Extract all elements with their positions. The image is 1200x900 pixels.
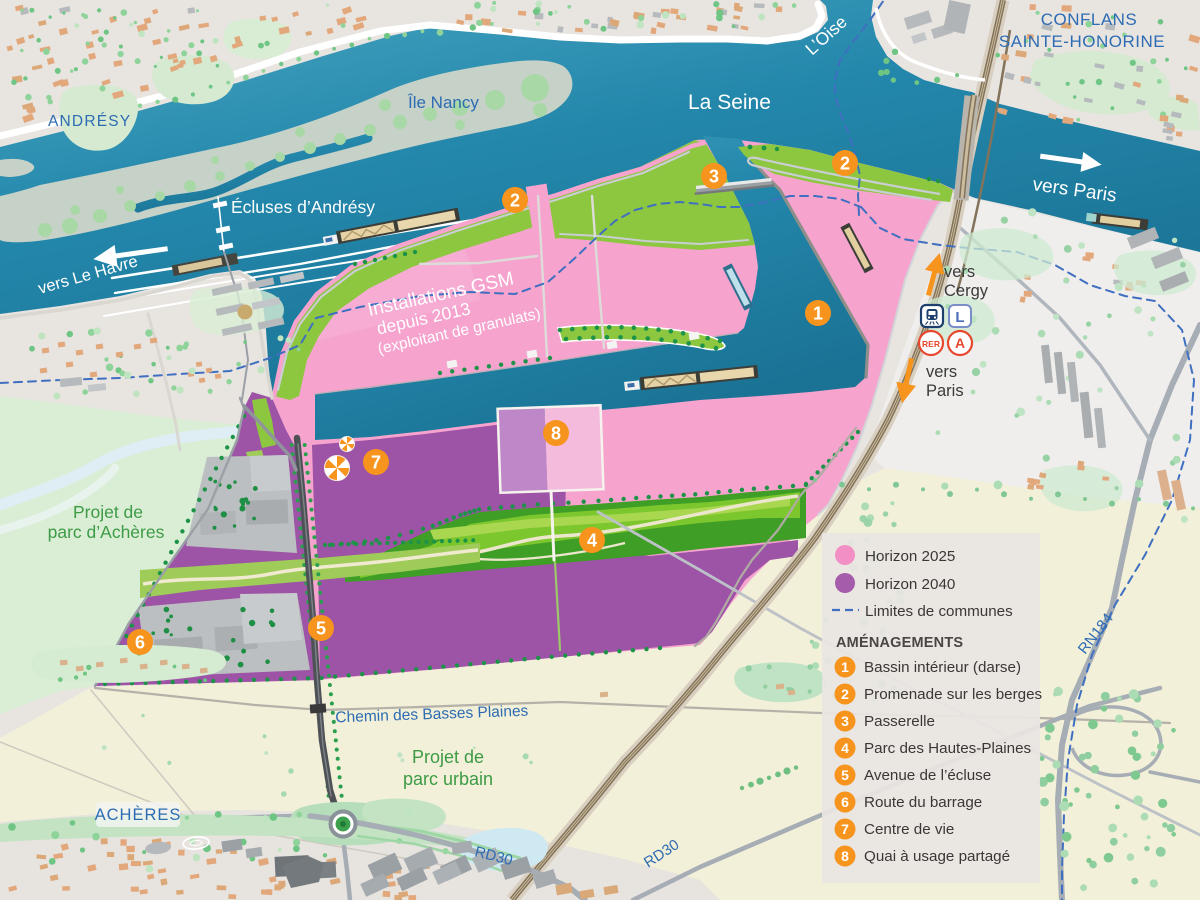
svg-text:7: 7: [371, 453, 381, 473]
svg-text:4: 4: [587, 531, 597, 551]
svg-text:7: 7: [841, 821, 849, 837]
svg-text:2: 2: [841, 686, 849, 702]
svg-text:3: 3: [841, 713, 849, 729]
svg-text:4: 4: [841, 740, 849, 756]
svg-text:vers: vers: [926, 363, 957, 381]
svg-text:CONFLANS: CONFLANS: [1041, 10, 1138, 29]
svg-text:Paris: Paris: [926, 382, 964, 400]
svg-text:Projet de: Projet de: [73, 502, 143, 522]
svg-text:AMÉNAGEMENTS: AMÉNAGEMENTS: [836, 634, 963, 651]
svg-text:Horizon 2040: Horizon 2040: [865, 576, 955, 593]
svg-text:L: L: [955, 309, 964, 326]
svg-text:Centre de vie: Centre de vie: [864, 821, 954, 838]
svg-text:1: 1: [813, 304, 823, 324]
svg-text:Île Nancy: Île Nancy: [407, 93, 479, 112]
svg-text:parc urbain: parc urbain: [403, 769, 493, 789]
svg-text:5: 5: [841, 767, 849, 783]
svg-text:parc d’Achères: parc d’Achères: [48, 522, 165, 542]
svg-text:3: 3: [709, 167, 719, 187]
svg-text:2: 2: [840, 154, 850, 174]
svg-text:5: 5: [316, 619, 326, 639]
svg-text:1: 1: [841, 659, 849, 675]
svg-text:A: A: [955, 335, 965, 351]
svg-text:8: 8: [841, 848, 849, 864]
svg-text:Passerelle: Passerelle: [864, 713, 935, 730]
svg-text:Route du barrage: Route du barrage: [864, 794, 982, 811]
svg-text:Quai à usage partagé: Quai à usage partagé: [864, 848, 1010, 865]
svg-text:ACHÈRES: ACHÈRES: [95, 805, 182, 824]
svg-text:8: 8: [551, 424, 561, 444]
svg-text:Promenade sur les berges: Promenade sur les berges: [864, 686, 1043, 703]
svg-text:La Seine: La Seine: [688, 91, 771, 114]
svg-text:Cergy: Cergy: [944, 282, 989, 300]
svg-text:2: 2: [510, 191, 520, 211]
svg-text:Horizon 2025: Horizon 2025: [865, 548, 955, 565]
svg-text:ANDRÉSY: ANDRÉSY: [48, 113, 131, 130]
svg-text:6: 6: [135, 633, 145, 653]
svg-text:Projet de: Projet de: [412, 747, 484, 767]
svg-text:Parc des Hautes-Plaines: Parc des Hautes-Plaines: [864, 740, 1032, 757]
svg-text:Bassin intérieur (darse): Bassin intérieur (darse): [864, 659, 1021, 676]
svg-text:RER: RER: [922, 339, 940, 349]
svg-text:Limites de communes: Limites de communes: [865, 603, 1013, 620]
svg-text:SAINTE-HONORINE: SAINTE-HONORINE: [999, 32, 1165, 51]
svg-text:Écluses d’Andrésy: Écluses d’Andrésy: [231, 197, 375, 217]
svg-text:Avenue de l’écluse: Avenue de l’écluse: [864, 767, 991, 784]
svg-text:6: 6: [841, 794, 849, 810]
svg-text:vers: vers: [944, 263, 975, 281]
